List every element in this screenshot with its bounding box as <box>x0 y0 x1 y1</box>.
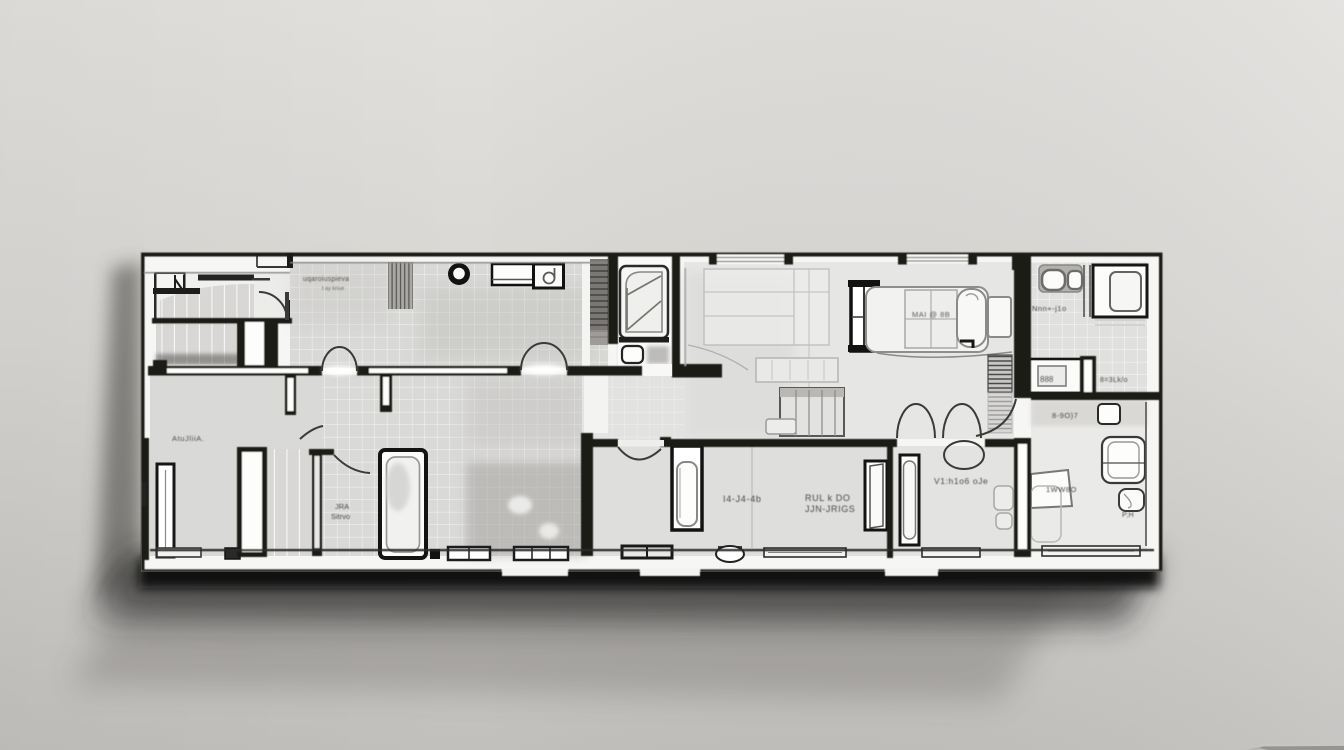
svg-text:V1:h1o6 oJe: V1:h1o6 oJe <box>934 476 988 486</box>
svg-text:JRA: JRA <box>335 502 349 511</box>
svg-text:JJN-JRIGS: JJN-JRIGS <box>805 504 855 514</box>
svg-text:t ay kriue: t ay kriue <box>322 286 344 292</box>
svg-text:Nnn+-j1o: Nnn+-j1o <box>1032 304 1067 313</box>
svg-text:AtuJliiA.: AtuJliiA. <box>172 434 205 443</box>
svg-text:888: 888 <box>1040 375 1054 384</box>
svg-text:P;H: P;H <box>1122 512 1134 519</box>
svg-text:MAI @ 8B: MAI @ 8B <box>912 310 950 319</box>
svg-text:8=3Lk/o: 8=3Lk/o <box>1100 377 1128 384</box>
svg-text:1WW8O: 1WW8O <box>1046 485 1077 494</box>
svg-text:RUL k DO: RUL k DO <box>805 493 850 503</box>
svg-text:Sitrvo: Sitrvo <box>331 512 350 521</box>
svg-text:8-9O)7: 8-9O)7 <box>1052 411 1078 420</box>
svg-text:uqaroiuspieva: uqaroiuspieva <box>303 276 349 283</box>
svg-text:I4-J4-4b: I4-J4-4b <box>723 494 762 504</box>
